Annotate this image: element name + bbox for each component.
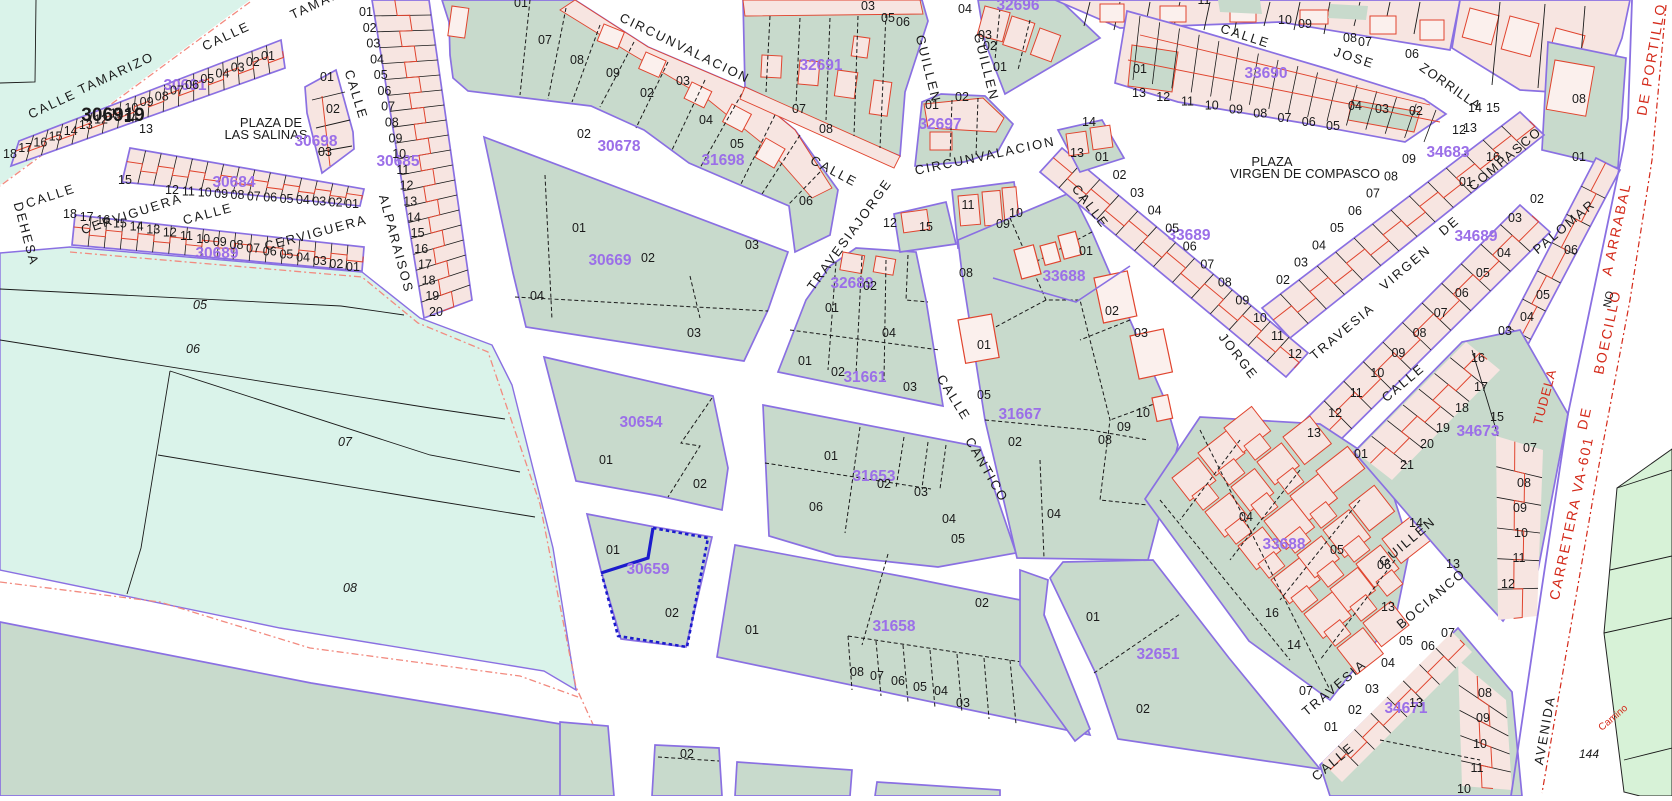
svg-text:17: 17: [418, 258, 432, 272]
svg-text:02: 02: [665, 606, 679, 620]
svg-text:08: 08: [1098, 433, 1112, 447]
svg-text:07: 07: [1358, 35, 1372, 49]
svg-text:09: 09: [140, 95, 154, 109]
svg-text:03: 03: [1498, 324, 1512, 338]
svg-text:18: 18: [63, 207, 77, 221]
svg-text:10: 10: [392, 147, 406, 161]
svg-text:03: 03: [366, 37, 380, 51]
svg-text:01: 01: [1572, 150, 1586, 164]
svg-text:14: 14: [1409, 516, 1423, 530]
svg-text:05: 05: [200, 72, 214, 86]
svg-text:08: 08: [819, 122, 833, 136]
svg-text:06: 06: [1183, 240, 1197, 254]
svg-text:03: 03: [1365, 682, 1379, 696]
svg-text:03: 03: [745, 238, 759, 252]
svg-text:01: 01: [345, 197, 359, 211]
svg-text:04: 04: [958, 2, 972, 16]
svg-text:32697: 32697: [918, 116, 961, 133]
svg-text:12: 12: [1501, 577, 1515, 591]
svg-text:12: 12: [165, 183, 179, 197]
svg-text:VIRGEN DE COMPASCO: VIRGEN DE COMPASCO: [1230, 166, 1380, 181]
svg-text:01: 01: [1079, 244, 1093, 258]
svg-text:33688: 33688: [1042, 268, 1085, 285]
svg-text:32691: 32691: [799, 57, 842, 74]
svg-text:02: 02: [1530, 192, 1544, 206]
svg-text:05: 05: [1330, 221, 1344, 235]
svg-text:04: 04: [1497, 246, 1511, 260]
svg-text:04: 04: [1148, 204, 1162, 218]
svg-text:02: 02: [831, 365, 845, 379]
svg-text:18: 18: [3, 147, 17, 161]
svg-text:09: 09: [1117, 420, 1131, 434]
svg-text:04: 04: [530, 289, 544, 303]
svg-text:04: 04: [1520, 310, 1534, 324]
svg-text:32651: 32651: [1136, 646, 1179, 663]
svg-text:08: 08: [570, 53, 584, 67]
svg-text:06: 06: [263, 191, 277, 205]
svg-text:11: 11: [1271, 329, 1284, 343]
svg-text:01: 01: [572, 221, 586, 235]
svg-text:14: 14: [130, 219, 144, 233]
svg-text:09: 09: [389, 131, 403, 145]
svg-text:08: 08: [850, 665, 864, 679]
svg-text:10: 10: [198, 186, 212, 200]
svg-text:144: 144: [1579, 747, 1599, 761]
svg-text:16: 16: [33, 135, 47, 149]
svg-text:04: 04: [942, 512, 956, 526]
svg-text:14: 14: [407, 210, 421, 224]
svg-text:02: 02: [975, 596, 989, 610]
svg-text:01: 01: [1095, 150, 1109, 164]
svg-text:02: 02: [640, 86, 654, 100]
svg-text:10: 10: [1136, 406, 1150, 420]
svg-text:08: 08: [1517, 476, 1531, 490]
svg-text:08: 08: [1413, 326, 1427, 340]
svg-text:09: 09: [1298, 17, 1312, 31]
svg-text:01: 01: [346, 260, 360, 274]
svg-text:05: 05: [279, 248, 293, 262]
svg-text:10: 10: [1370, 366, 1384, 380]
svg-text:03: 03: [318, 145, 332, 159]
svg-text:12: 12: [1452, 123, 1466, 137]
svg-text:02: 02: [329, 196, 343, 210]
svg-text:01: 01: [514, 0, 528, 10]
svg-text:01: 01: [745, 623, 759, 637]
svg-text:07: 07: [338, 435, 353, 449]
svg-text:11: 11: [110, 107, 123, 121]
svg-text:01: 01: [1324, 720, 1338, 734]
svg-text:08: 08: [1218, 275, 1232, 289]
svg-text:02: 02: [877, 477, 891, 491]
svg-text:02: 02: [577, 127, 591, 141]
svg-text:34689: 34689: [1454, 228, 1497, 245]
svg-text:04: 04: [1348, 99, 1362, 113]
svg-text:02: 02: [641, 251, 655, 265]
svg-text:33688: 33688: [1262, 536, 1305, 553]
svg-text:04: 04: [1381, 656, 1395, 670]
svg-text:10: 10: [196, 232, 210, 246]
svg-text:14: 14: [1082, 115, 1096, 129]
svg-text:15: 15: [1486, 101, 1500, 115]
svg-text:14: 14: [124, 111, 138, 125]
svg-text:01: 01: [1133, 62, 1147, 76]
svg-text:16: 16: [1486, 150, 1500, 164]
svg-text:04: 04: [296, 193, 310, 207]
svg-text:20: 20: [1420, 437, 1434, 451]
svg-text:02: 02: [326, 102, 340, 116]
svg-text:04: 04: [934, 684, 948, 698]
svg-text:07: 07: [1278, 111, 1292, 125]
svg-text:09: 09: [1476, 711, 1490, 725]
svg-text:06: 06: [1405, 47, 1419, 61]
svg-text:03: 03: [903, 380, 917, 394]
svg-text:09: 09: [1391, 346, 1405, 360]
svg-text:08: 08: [1572, 92, 1586, 106]
svg-text:10: 10: [1278, 13, 1292, 27]
svg-text:08: 08: [1478, 686, 1492, 700]
svg-text:08: 08: [1343, 31, 1357, 45]
svg-text:10: 10: [1009, 206, 1023, 220]
svg-text:01: 01: [606, 543, 620, 557]
svg-text:06: 06: [809, 500, 823, 514]
svg-text:01: 01: [261, 49, 275, 63]
svg-text:01: 01: [1459, 175, 1473, 189]
svg-text:03: 03: [313, 254, 327, 268]
svg-text:02: 02: [246, 55, 260, 69]
svg-text:09: 09: [214, 187, 228, 201]
svg-text:08: 08: [230, 238, 244, 252]
svg-text:01: 01: [1086, 610, 1100, 624]
svg-text:03: 03: [231, 61, 245, 75]
svg-text:30678: 30678: [597, 138, 640, 155]
svg-text:06: 06: [891, 674, 905, 688]
svg-text:07: 07: [1434, 306, 1448, 320]
svg-text:30654: 30654: [619, 414, 662, 431]
svg-text:09: 09: [1513, 501, 1527, 515]
svg-text:05: 05: [730, 137, 744, 151]
svg-text:01: 01: [925, 98, 939, 112]
svg-text:07: 07: [1299, 684, 1313, 698]
svg-text:06: 06: [1302, 115, 1316, 129]
svg-text:15: 15: [919, 220, 933, 234]
svg-text:02: 02: [1105, 304, 1119, 318]
svg-text:32696: 32696: [996, 0, 1039, 14]
svg-text:08: 08: [1384, 169, 1398, 183]
svg-text:09: 09: [996, 217, 1010, 231]
svg-text:02: 02: [693, 477, 707, 491]
svg-text:04: 04: [699, 113, 713, 127]
svg-text:16: 16: [414, 242, 428, 256]
svg-text:01: 01: [993, 60, 1007, 74]
svg-text:13: 13: [146, 223, 160, 237]
svg-text:07: 07: [246, 241, 260, 255]
svg-text:05: 05: [913, 680, 927, 694]
svg-text:17: 17: [1474, 380, 1488, 394]
svg-text:13: 13: [1132, 86, 1146, 100]
svg-text:11: 11: [1471, 761, 1484, 775]
svg-text:09: 09: [1402, 152, 1416, 166]
svg-text:13: 13: [403, 194, 417, 208]
svg-text:12: 12: [400, 179, 414, 193]
svg-text:31661: 31661: [843, 369, 886, 386]
svg-text:10: 10: [1205, 98, 1219, 112]
svg-text:13: 13: [1381, 600, 1395, 614]
svg-text:05: 05: [280, 192, 294, 206]
svg-text:11: 11: [1513, 551, 1526, 565]
svg-text:12: 12: [94, 112, 108, 126]
svg-text:15: 15: [113, 216, 127, 230]
svg-text:15: 15: [118, 173, 132, 187]
svg-text:34683: 34683: [1426, 144, 1469, 161]
svg-text:06: 06: [799, 194, 813, 208]
svg-text:05: 05: [1330, 543, 1344, 557]
svg-text:13: 13: [1409, 696, 1423, 710]
svg-text:06: 06: [1421, 639, 1435, 653]
svg-text:17: 17: [18, 141, 32, 155]
svg-text:07: 07: [381, 100, 395, 114]
svg-text:10: 10: [1253, 311, 1267, 325]
svg-text:02: 02: [1136, 702, 1150, 716]
svg-text:30659: 30659: [626, 561, 669, 578]
svg-text:09: 09: [606, 66, 620, 80]
svg-text:01: 01: [824, 449, 838, 463]
svg-text:08: 08: [155, 89, 169, 103]
svg-text:06: 06: [185, 78, 199, 92]
svg-text:07: 07: [247, 189, 261, 203]
svg-text:31658: 31658: [872, 618, 915, 635]
svg-text:06: 06: [1377, 558, 1391, 572]
svg-text:02: 02: [1409, 104, 1423, 118]
svg-text:19: 19: [425, 289, 439, 303]
svg-text:01: 01: [320, 70, 334, 84]
svg-text:01: 01: [977, 338, 991, 352]
svg-text:08: 08: [231, 188, 245, 202]
svg-text:11: 11: [1198, 0, 1211, 7]
svg-text:06: 06: [377, 84, 391, 98]
svg-text:08: 08: [959, 266, 973, 280]
svg-text:15: 15: [49, 130, 63, 144]
svg-text:15: 15: [411, 226, 425, 240]
svg-text:02: 02: [329, 257, 343, 271]
svg-text:03: 03: [1130, 186, 1144, 200]
svg-text:17: 17: [80, 210, 94, 224]
svg-text:01: 01: [599, 453, 613, 467]
svg-text:08: 08: [1253, 107, 1267, 121]
svg-text:34673: 34673: [1456, 423, 1499, 440]
svg-text:12: 12: [883, 216, 897, 230]
svg-text:14: 14: [64, 124, 78, 138]
svg-text:09: 09: [213, 235, 227, 249]
svg-text:02: 02: [1348, 703, 1362, 717]
svg-text:05: 05: [977, 388, 991, 402]
svg-text:11: 11: [182, 184, 195, 198]
svg-text:16: 16: [1471, 351, 1485, 365]
svg-text:10: 10: [1514, 526, 1528, 540]
svg-text:06: 06: [186, 342, 200, 356]
svg-text:11: 11: [962, 198, 975, 212]
svg-text:11: 11: [396, 163, 409, 177]
svg-text:10: 10: [1457, 782, 1471, 796]
svg-text:05: 05: [951, 532, 965, 546]
svg-text:04: 04: [216, 66, 230, 80]
svg-text:04: 04: [1047, 507, 1061, 521]
svg-text:03: 03: [687, 326, 701, 340]
svg-text:09: 09: [1235, 293, 1249, 307]
svg-text:05: 05: [374, 68, 388, 82]
svg-text:13: 13: [1307, 426, 1321, 440]
svg-text:15: 15: [1490, 410, 1504, 424]
svg-text:07: 07: [170, 84, 184, 98]
svg-text:08: 08: [385, 116, 399, 130]
svg-text:03: 03: [914, 485, 928, 499]
svg-text:03: 03: [1508, 211, 1522, 225]
svg-text:11: 11: [1181, 94, 1194, 108]
svg-text:08: 08: [343, 581, 357, 595]
svg-text:03: 03: [956, 696, 970, 710]
svg-text:19: 19: [1436, 421, 1450, 435]
svg-text:12: 12: [1288, 347, 1302, 361]
svg-text:02: 02: [983, 39, 997, 53]
svg-text:03: 03: [1134, 326, 1148, 340]
svg-text:31667: 31667: [998, 406, 1041, 423]
svg-text:07: 07: [1441, 626, 1455, 640]
svg-text:06: 06: [1455, 286, 1469, 300]
svg-text:02: 02: [363, 21, 377, 35]
svg-text:02: 02: [863, 279, 877, 293]
svg-text:33690: 33690: [1244, 65, 1287, 82]
svg-text:02: 02: [1113, 168, 1127, 182]
svg-text:13: 13: [1070, 146, 1084, 160]
svg-text:06: 06: [1348, 204, 1362, 218]
svg-text:01: 01: [359, 5, 373, 19]
svg-text:12: 12: [163, 226, 177, 240]
svg-text:05: 05: [1399, 634, 1413, 648]
svg-text:30669: 30669: [588, 252, 631, 269]
svg-text:07: 07: [1366, 187, 1380, 201]
svg-text:07: 07: [538, 33, 552, 47]
svg-text:14: 14: [1287, 638, 1301, 652]
svg-text:01: 01: [798, 354, 812, 368]
svg-text:05: 05: [1476, 266, 1490, 280]
svg-text:18: 18: [1455, 401, 1469, 415]
svg-text:05: 05: [1165, 222, 1179, 236]
svg-text:06: 06: [263, 244, 277, 258]
svg-text:02: 02: [955, 90, 969, 104]
svg-text:18: 18: [422, 273, 436, 287]
svg-text:04: 04: [1239, 510, 1253, 524]
svg-text:05: 05: [193, 298, 207, 312]
svg-text:06: 06: [1564, 243, 1578, 257]
svg-text:16: 16: [96, 213, 110, 227]
svg-text:03: 03: [1375, 102, 1389, 116]
svg-text:13: 13: [1446, 557, 1460, 571]
svg-text:03: 03: [861, 0, 875, 13]
svg-text:05: 05: [1536, 288, 1550, 302]
svg-text:07: 07: [1200, 257, 1214, 271]
svg-text:31698: 31698: [701, 152, 744, 169]
svg-text:07: 07: [1523, 441, 1537, 455]
svg-text:12: 12: [1328, 406, 1342, 420]
svg-text:02: 02: [680, 747, 694, 761]
svg-text:12: 12: [1156, 90, 1170, 104]
svg-text:05: 05: [1326, 119, 1340, 133]
svg-text:02: 02: [1276, 273, 1290, 287]
svg-text:04: 04: [882, 326, 896, 340]
svg-text:01: 01: [1354, 447, 1368, 461]
svg-text:10: 10: [1473, 737, 1487, 751]
svg-text:21: 21: [1400, 458, 1414, 472]
svg-text:11: 11: [180, 229, 193, 243]
svg-text:06: 06: [896, 15, 910, 29]
svg-text:07: 07: [792, 102, 806, 116]
svg-text:11: 11: [1350, 386, 1363, 400]
svg-text:14: 14: [1468, 101, 1482, 115]
svg-text:13: 13: [79, 118, 93, 132]
svg-text:01: 01: [825, 301, 839, 315]
svg-text:02: 02: [1008, 435, 1022, 449]
svg-text:20: 20: [429, 305, 443, 319]
svg-text:04: 04: [370, 52, 384, 66]
svg-text:03: 03: [1294, 256, 1308, 270]
svg-text:04: 04: [296, 251, 310, 265]
svg-text:03: 03: [312, 194, 326, 208]
svg-text:13: 13: [139, 122, 153, 136]
svg-text:07: 07: [870, 669, 884, 683]
svg-text:09: 09: [1229, 103, 1243, 117]
svg-text:05: 05: [881, 11, 895, 25]
svg-text:16: 16: [1265, 606, 1279, 620]
svg-text:04: 04: [1312, 238, 1326, 252]
svg-text:03: 03: [676, 74, 690, 88]
